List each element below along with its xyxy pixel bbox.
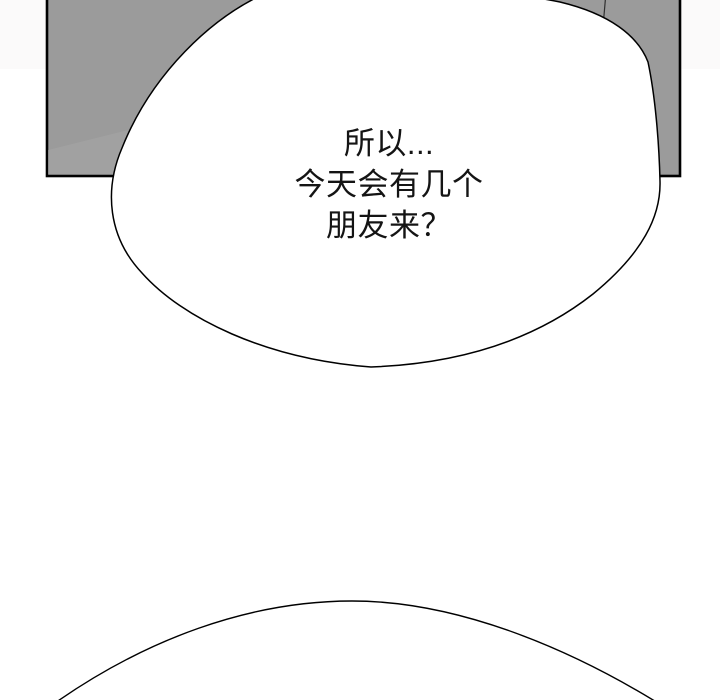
speech-line-3: 朋友来？ xyxy=(189,205,589,246)
webtoon-page: 所以... 今天会有几个 朋友来？ xyxy=(0,0,720,700)
speech-line-1: 所以... xyxy=(189,123,589,164)
comic-artwork xyxy=(0,0,720,700)
speech-bubble-text: 所以... 今天会有几个 朋友来？ xyxy=(189,123,589,246)
speech-line-2: 今天会有几个 xyxy=(189,164,589,205)
